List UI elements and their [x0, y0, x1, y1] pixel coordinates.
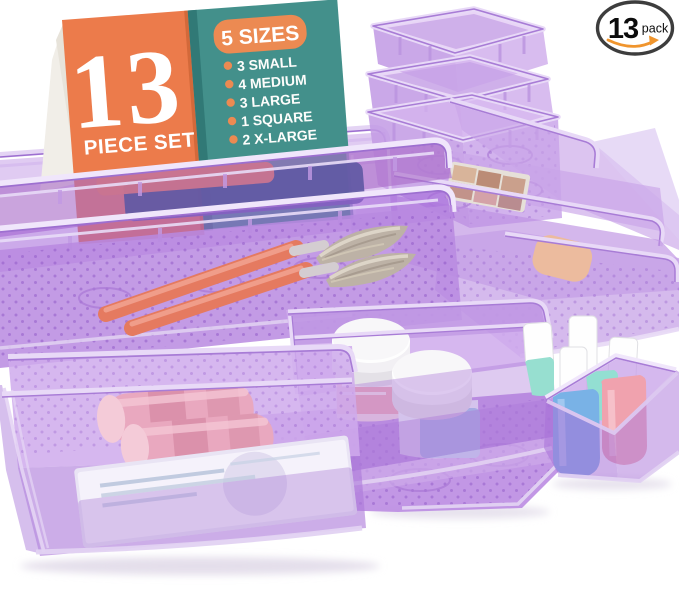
svg-text:pack: pack — [642, 22, 669, 36]
svg-text:13: 13 — [608, 13, 639, 45]
